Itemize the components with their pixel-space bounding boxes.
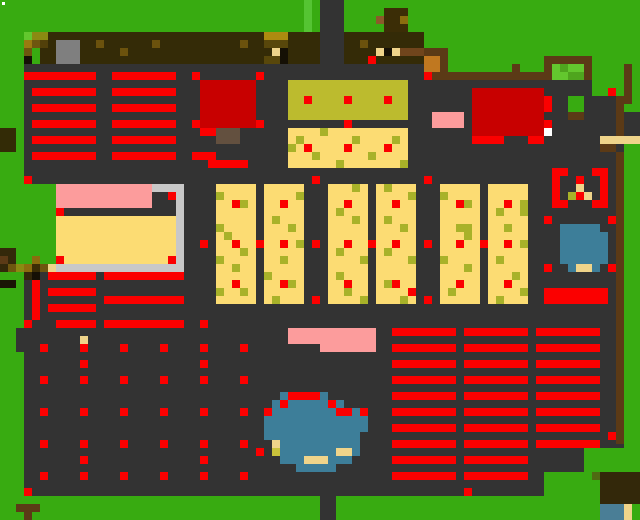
red-dot [80, 440, 88, 448]
wheat-speck [512, 272, 520, 280]
cliff-patch [0, 128, 16, 152]
red-dot [160, 472, 168, 480]
red-dot [160, 440, 168, 448]
wheat-speck [360, 296, 368, 304]
red-crop-row [56, 320, 96, 328]
pond-buoy [256, 448, 264, 456]
red-dot [200, 344, 208, 352]
wheat-speck [240, 200, 248, 208]
red-crop-row [392, 440, 456, 448]
tree-canopy [24, 272, 32, 280]
red-crop-row [464, 408, 528, 416]
tree-shadow [0, 280, 16, 288]
red-marker [608, 88, 616, 96]
shrine-flame [568, 192, 576, 200]
red-dot [392, 200, 400, 208]
red-dot [40, 472, 48, 480]
house-roof [56, 184, 152, 208]
red-crop-row [192, 152, 216, 160]
big-pond [296, 464, 336, 472]
band-edge [40, 40, 48, 48]
north-road [320, 0, 344, 64]
red-marker [56, 256, 64, 264]
hay-row [264, 40, 288, 48]
pond-sand [272, 440, 280, 448]
tree-canopy [0, 248, 16, 256]
red-dot [40, 344, 48, 352]
red-dot [424, 176, 432, 184]
red-dot [312, 296, 320, 304]
red-crop-row [464, 328, 528, 336]
hay-tile [80, 336, 88, 344]
red-dot [504, 280, 512, 288]
grass-stripe [304, 0, 312, 32]
red-marker [608, 216, 616, 224]
red-marker [168, 192, 176, 200]
east-path [616, 152, 624, 444]
bush-leaves-dark [568, 72, 584, 80]
critter-body [384, 48, 392, 56]
shrine-frame [552, 168, 568, 176]
wheat-speck [216, 256, 224, 264]
hall-trim [544, 120, 552, 128]
red-crop-row [24, 72, 96, 80]
wheat-speck [344, 288, 352, 296]
red-marker [200, 240, 208, 248]
red-crop-row [536, 424, 600, 432]
red-dot [232, 200, 240, 208]
red-dot [200, 408, 208, 416]
red-dot [240, 344, 248, 352]
hall-trim [544, 96, 552, 112]
wheat-speck [312, 152, 320, 160]
red-banner [544, 288, 608, 304]
red-dot [232, 280, 240, 288]
tree-trunk [32, 272, 40, 280]
bush-frame [544, 56, 592, 64]
red-dot [200, 360, 208, 368]
wheat-speck [400, 296, 408, 304]
red-dot [120, 376, 128, 384]
dirt-path [400, 48, 424, 56]
wheat-speck [384, 248, 392, 256]
pond-sand [336, 448, 352, 456]
tree-gold [400, 16, 408, 24]
red-dot [40, 408, 48, 416]
red-dot [80, 376, 88, 384]
red-dot [80, 472, 88, 480]
grass-margin [24, 184, 56, 272]
critter-eye [376, 48, 384, 56]
cabin [600, 472, 640, 504]
red-dot [200, 456, 208, 464]
wheat-speck [496, 256, 504, 264]
wheat-speck [232, 264, 240, 272]
wheat-speck [464, 232, 472, 240]
pond-buoy [328, 400, 336, 408]
wheat-speck [408, 256, 416, 264]
red-crop-row [536, 344, 600, 352]
pixel-world-map[interactable] [0, 0, 640, 520]
big-pond [264, 432, 360, 440]
wheat-speck [320, 128, 328, 136]
pond-buoy [288, 392, 320, 400]
bush-leaves-dark [560, 64, 568, 72]
red-crop-row [536, 328, 600, 336]
wheat-speck [520, 288, 528, 296]
soil-speck [152, 40, 160, 48]
red-crop-row [536, 360, 600, 368]
band-edge [24, 32, 32, 40]
wheat-speck [384, 280, 392, 288]
hall-roof [472, 88, 544, 136]
red-dot [392, 280, 400, 288]
red-dot [200, 440, 208, 448]
red-dot [456, 280, 464, 288]
red-crop-row [48, 272, 96, 280]
pond-edge [320, 392, 328, 400]
red-crop-row [104, 296, 184, 304]
red-marker [256, 72, 264, 80]
red-crop-row [112, 136, 176, 144]
pond-buoy [280, 400, 288, 408]
shrine-frame [552, 200, 568, 208]
wheat-speck [448, 288, 456, 296]
red-crop-row [464, 360, 528, 368]
wheat-speck [384, 184, 392, 192]
soil-speck [360, 40, 368, 48]
red-dot [280, 200, 288, 208]
pond-edge [272, 400, 280, 408]
red-dot [160, 408, 168, 416]
wheat-speck [336, 248, 344, 256]
soil-speck [120, 48, 128, 56]
wheat-speck [384, 216, 392, 224]
red-dot [384, 144, 392, 152]
red-dot [280, 240, 288, 248]
red-dot [240, 440, 248, 448]
red-dot [456, 240, 464, 248]
red-marker [544, 216, 552, 224]
red-marker [56, 208, 64, 216]
wheat-speck [240, 248, 248, 256]
soil-speck [96, 40, 104, 48]
red-crop-row [32, 152, 96, 160]
band-edge [24, 40, 32, 48]
wheat-speck [400, 160, 408, 168]
red-crop-row [208, 160, 248, 168]
dark-notch [16, 328, 24, 352]
red-dot [344, 240, 352, 248]
dirt-path [512, 64, 520, 72]
shrine-frame [592, 168, 608, 176]
red-dot [200, 376, 208, 384]
red-dot [344, 200, 352, 208]
red-dot [312, 176, 320, 184]
dirt-path [568, 112, 584, 120]
red-dot [40, 440, 48, 448]
red-crop-row [392, 424, 456, 432]
red-crop-row [536, 376, 600, 384]
wheat-speck [496, 296, 504, 304]
pond-sand [304, 456, 328, 464]
wheat-speck [352, 184, 360, 192]
red-dot [120, 440, 128, 448]
dirt-path [600, 144, 616, 152]
red-crop-row [112, 72, 176, 80]
wheat-speck [352, 216, 360, 224]
red-dot [456, 200, 464, 208]
map-dot [2, 2, 5, 5]
red-crop-row [536, 408, 600, 416]
red-crop-row [112, 152, 176, 160]
red-marker [544, 264, 552, 272]
hay-row [264, 32, 288, 40]
hall-step [472, 136, 504, 144]
sand-crossing [600, 136, 640, 144]
house-wall [176, 192, 184, 272]
tree-gold [16, 264, 24, 272]
red-dot [384, 96, 392, 104]
hall-step [528, 136, 544, 144]
wheat-speck [504, 224, 512, 232]
south-road [320, 496, 336, 520]
tree-canopy [8, 256, 16, 264]
red-crop-row [48, 288, 96, 296]
red-crop-row [104, 320, 184, 328]
dirt-path [24, 512, 32, 520]
red-crop-row [464, 440, 528, 448]
pond-edge [336, 400, 344, 408]
wheat-speck [336, 208, 344, 216]
red-dot [392, 240, 400, 248]
wheat-speck [296, 192, 304, 200]
shrine-flame [576, 192, 584, 200]
red-crop-row [112, 104, 176, 112]
red-crop-row [464, 344, 528, 352]
gate-door [424, 56, 440, 72]
red-dot [304, 96, 312, 104]
red-post [32, 280, 40, 320]
red-crop-row [464, 472, 528, 480]
red-crop-row [536, 440, 600, 448]
hall-door [544, 128, 552, 136]
wheat-speck [336, 272, 344, 280]
shrine-frame [592, 200, 608, 208]
cabin-moss [592, 472, 600, 480]
big-pond [280, 440, 360, 448]
big-pond [288, 400, 328, 408]
red-crop-row [392, 344, 456, 352]
red-marker [168, 256, 176, 264]
wheat-speck [456, 224, 472, 232]
dark-pocket [624, 112, 640, 136]
pond-buoy [336, 408, 352, 416]
red-marker [368, 56, 376, 64]
pond-buoy [360, 408, 368, 416]
cave-tile [280, 48, 288, 64]
red-marker [24, 176, 32, 184]
critter-eye [392, 48, 400, 56]
wheat-speck [496, 208, 504, 216]
cabin-sand [624, 504, 632, 520]
pink-mat [432, 112, 464, 128]
house-wall [152, 184, 184, 192]
red-dot [280, 280, 288, 288]
red-dot [424, 240, 432, 248]
hay-tile [48, 264, 56, 272]
red-dot [344, 96, 352, 104]
wheat-speck [520, 240, 528, 248]
dirt-path [536, 72, 544, 80]
wheat-speck [368, 152, 376, 160]
rock [56, 40, 80, 64]
red-dot [368, 240, 376, 248]
tree-canopy [32, 264, 40, 272]
red-dot [200, 472, 208, 480]
hay-tile [272, 48, 280, 56]
dirt-path [448, 72, 536, 80]
big-pond [280, 456, 304, 464]
red-dot [344, 120, 352, 128]
red-marker [424, 72, 432, 80]
wheat-speck [296, 240, 304, 248]
wheat-speck [392, 136, 400, 144]
wheat-speck [272, 216, 280, 224]
red-crop-row [464, 392, 528, 400]
red-dot [504, 240, 512, 248]
wheat-speck [440, 256, 448, 264]
wheat-speck [352, 136, 360, 144]
red-dot [344, 144, 352, 152]
red-marker [192, 120, 200, 128]
red-crop-row [392, 472, 456, 480]
tree-canopy [0, 264, 8, 272]
wheat-speck [288, 224, 296, 232]
red-crop-row [112, 88, 176, 96]
red-marker [200, 320, 208, 328]
red-crop-row [392, 456, 456, 464]
pond-sand [576, 264, 592, 272]
red-crop-row [392, 360, 456, 368]
big-pond [280, 448, 336, 456]
wheat-speck [288, 144, 296, 152]
tree-branch [40, 264, 48, 272]
hay-row [264, 56, 280, 64]
red-dot [80, 344, 88, 352]
red-marker [256, 120, 264, 128]
pink-mat [320, 344, 376, 352]
red-dot [120, 472, 128, 480]
red-crop-row [104, 272, 184, 280]
bush-frame [544, 64, 552, 80]
shrine-flame [576, 176, 584, 184]
pink-mat [288, 328, 376, 344]
red-marker [24, 488, 32, 496]
wheat-speck [224, 232, 232, 240]
wheat-speck [296, 136, 304, 144]
red-marker [192, 72, 200, 80]
wheat-speck [288, 280, 296, 288]
pond-buoy [264, 408, 272, 416]
wheat-speck [408, 192, 416, 200]
red-crop-row [112, 120, 176, 128]
red-dot [240, 376, 248, 384]
red-dot [424, 296, 432, 304]
pond-edge [352, 408, 360, 416]
red-step [200, 128, 216, 136]
red-dot [480, 240, 488, 248]
wheat-speck [216, 288, 224, 296]
red-crop-row [48, 304, 96, 312]
shrine-flame [576, 184, 584, 192]
big-pond [264, 424, 368, 432]
red-marker [24, 320, 32, 328]
wheat-speck [264, 272, 272, 280]
red-dot [80, 360, 88, 368]
red-dot [240, 472, 248, 480]
red-crop-row [392, 376, 456, 384]
red-dot [240, 408, 248, 416]
red-crop-row [392, 408, 456, 416]
shrine-flame [584, 192, 592, 200]
wheat-speck [520, 200, 528, 216]
bush-frame [584, 64, 592, 80]
red-crop-row [32, 136, 96, 144]
small-pond [600, 232, 608, 264]
red-dot [344, 280, 352, 288]
big-pond [272, 408, 336, 416]
wheat-speck [400, 224, 408, 232]
red-crop-row [392, 328, 456, 336]
wheat-speck [464, 264, 472, 272]
tree-branch [376, 16, 384, 24]
house-wall [56, 264, 184, 272]
red-dot [40, 376, 48, 384]
red-crop-row [464, 376, 528, 384]
wheat-speck [336, 160, 344, 168]
red-dot [120, 344, 128, 352]
red-dot [504, 200, 512, 208]
big-pond [328, 456, 352, 464]
barn-roof [200, 80, 256, 128]
pond-sand [272, 448, 280, 456]
wheat-speck [464, 200, 472, 208]
band-edge [32, 32, 48, 40]
wheat-speck [360, 256, 368, 264]
shrine-frame [552, 176, 560, 200]
red-dot [408, 288, 416, 296]
red-dot [120, 408, 128, 416]
tree-gold [32, 256, 40, 264]
pond-edge [280, 392, 288, 400]
wheat-speck [440, 192, 448, 200]
red-dot [232, 240, 240, 248]
small-pond [560, 224, 600, 264]
red-crop-row [32, 120, 96, 128]
tree-branch [0, 256, 8, 264]
red-dot [256, 240, 264, 248]
red-dot [312, 240, 320, 248]
grass-knoll [544, 472, 584, 496]
big-pond [264, 416, 368, 424]
east-path [624, 64, 632, 96]
dirt-path [16, 504, 40, 512]
red-marker [608, 264, 616, 272]
red-crop-row [32, 104, 96, 112]
cabin-water [600, 504, 624, 520]
tree-gold [24, 264, 32, 272]
